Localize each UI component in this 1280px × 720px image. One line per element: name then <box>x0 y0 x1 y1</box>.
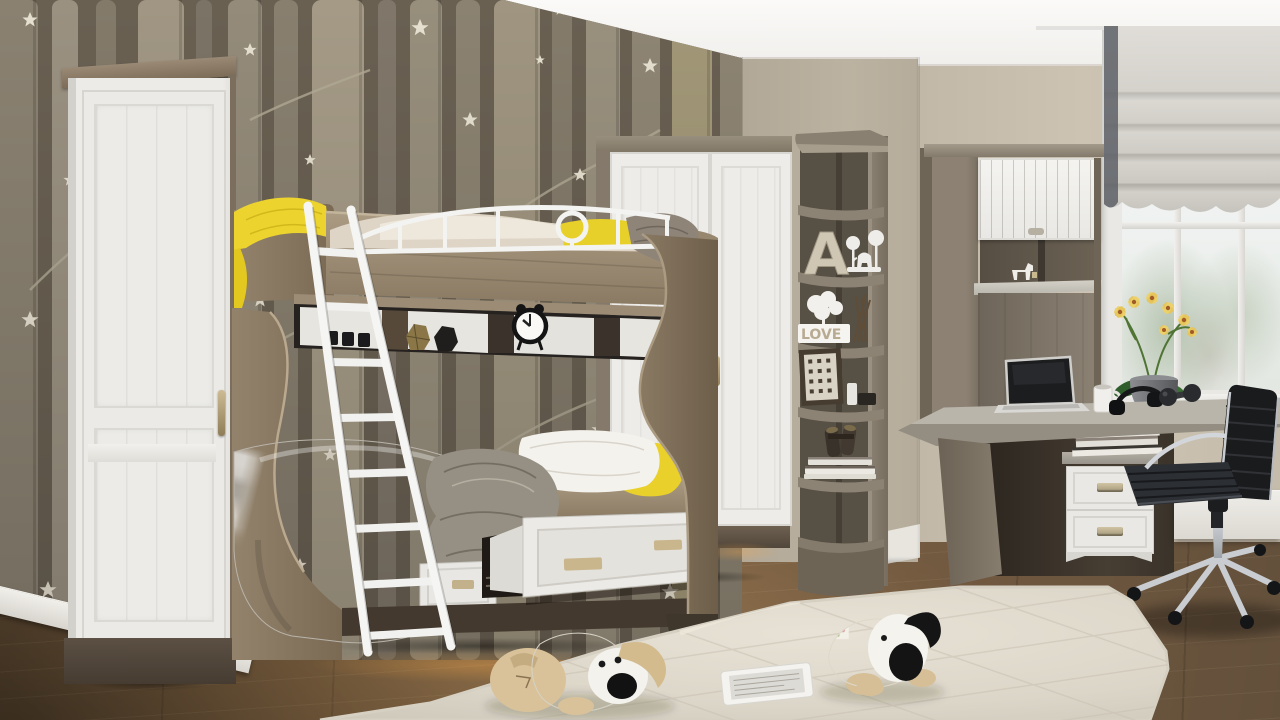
horse-figurine <box>1008 256 1038 282</box>
wardrobe-door <box>82 90 226 640</box>
wardrobe-handle <box>218 390 225 436</box>
camera-decor <box>858 393 876 405</box>
e-reader-tablet <box>720 662 813 705</box>
laptop <box>994 357 1090 413</box>
blind-trim <box>1104 26 1118 208</box>
drawer-handle <box>564 557 602 570</box>
wardrobe-door <box>710 152 792 526</box>
candle-cups <box>326 331 370 347</box>
letter-a-decor: A <box>804 220 849 288</box>
orchid-flowers <box>1113 291 1197 337</box>
hutch-handle <box>1028 228 1044 235</box>
hutch-divider <box>1038 238 1045 284</box>
desk-hutch-column <box>920 148 978 424</box>
chair-column <box>1208 496 1228 558</box>
book-stack <box>804 457 876 479</box>
corner-shelf-unit: A LOVE <box>792 128 892 594</box>
desk-hutch-top <box>924 144 1104 157</box>
drawer-handle <box>654 540 682 551</box>
alarm-clock <box>514 304 546 350</box>
room-scene: A LOVE <box>0 0 1280 720</box>
svg-text:LOVE: LOVE <box>801 327 841 343</box>
rug-items <box>470 588 970 720</box>
butterfly-frame <box>799 348 844 406</box>
roman-blind <box>1096 0 1280 236</box>
jar-decor <box>847 383 857 405</box>
